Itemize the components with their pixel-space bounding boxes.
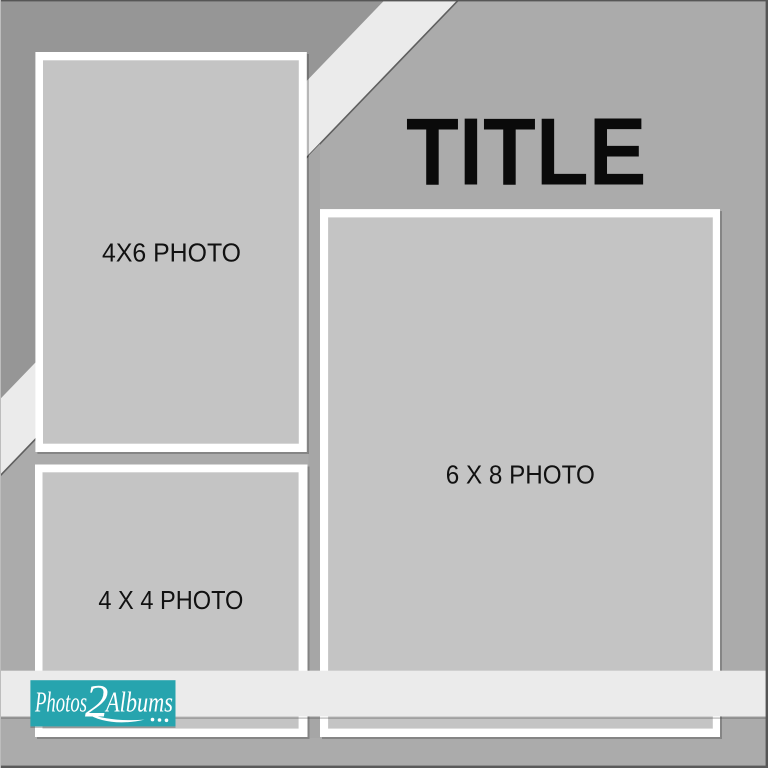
svg-text:4X6 PHOTO: 4X6 PHOTO [102, 238, 241, 268]
svg-text:TITLE: TITLE [406, 99, 647, 205]
svg-text:4 X 4 PHOTO: 4 X 4 PHOTO [98, 585, 243, 615]
svg-text:Albums: Albums [104, 687, 173, 719]
svg-text:Photos: Photos [34, 687, 87, 719]
svg-text:6 X 8 PHOTO: 6 X 8 PHOTO [446, 459, 595, 489]
